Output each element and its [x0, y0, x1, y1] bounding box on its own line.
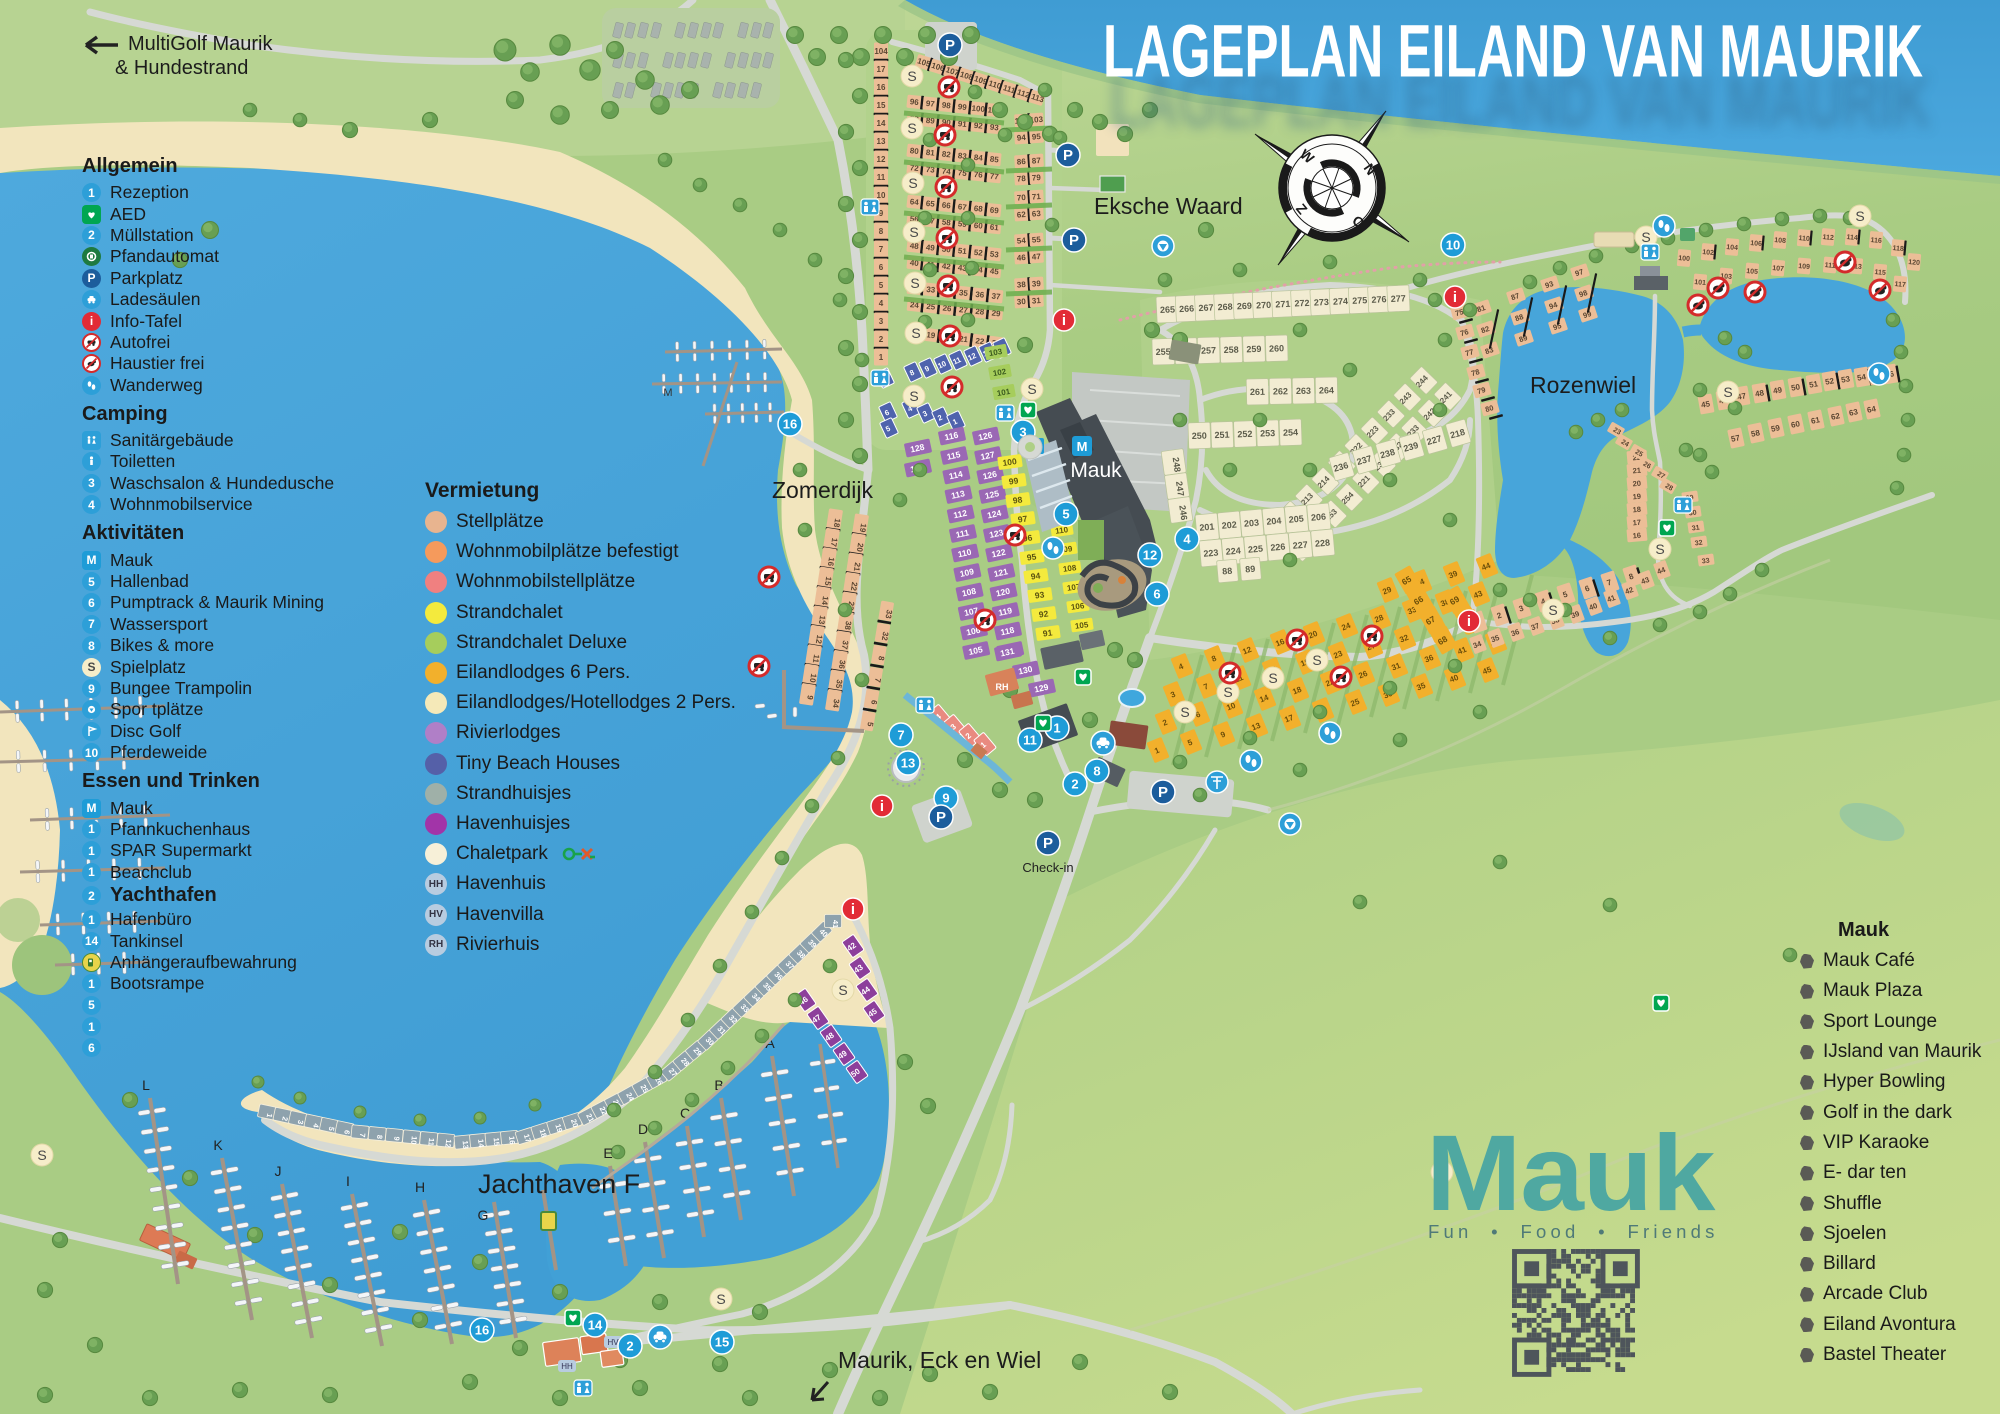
svg-text:106: 106 [1070, 601, 1085, 612]
svg-text:228: 228 [1315, 537, 1331, 548]
svg-text:98: 98 [1012, 494, 1023, 505]
svg-text:3: 3 [879, 317, 884, 326]
svg-text:MultiGolf Maurik: MultiGolf Maurik [128, 33, 273, 55]
svg-text:99: 99 [1008, 475, 1019, 486]
svg-text:32: 32 [1694, 539, 1703, 547]
svg-text:i: i [1062, 312, 1066, 329]
svg-text:S: S [1180, 704, 1189, 720]
svg-text:252: 252 [1237, 429, 1252, 440]
svg-text:i: i [851, 901, 855, 918]
svg-text:81: 81 [925, 148, 935, 158]
svg-text:52: 52 [973, 248, 983, 258]
svg-text:255: 255 [1156, 347, 1171, 357]
svg-text:33: 33 [926, 285, 936, 295]
svg-text:93: 93 [1034, 589, 1045, 600]
svg-text:257: 257 [1201, 345, 1216, 355]
svg-text:54: 54 [1017, 236, 1027, 246]
svg-text:S: S [1312, 652, 1321, 668]
svg-text:102: 102 [1702, 249, 1714, 257]
svg-text:100: 100 [1002, 456, 1018, 468]
svg-text:265: 265 [1160, 304, 1175, 315]
svg-text:12: 12 [1143, 548, 1157, 563]
svg-text:S: S [1548, 602, 1557, 618]
svg-text:84: 84 [973, 153, 983, 163]
svg-text:274: 274 [1333, 296, 1348, 307]
svg-text:RH: RH [996, 682, 1009, 692]
svg-text:271: 271 [1275, 299, 1290, 310]
svg-text:S: S [1723, 384, 1732, 400]
svg-text:13: 13 [461, 1140, 471, 1149]
svg-text:263: 263 [1296, 386, 1311, 396]
svg-text:55: 55 [1032, 235, 1042, 245]
svg-text:J: J [275, 1163, 282, 1179]
svg-text:277: 277 [1391, 293, 1406, 304]
svg-text:S: S [1641, 229, 1650, 245]
svg-text:118: 118 [1892, 245, 1904, 253]
svg-text:70: 70 [1017, 193, 1027, 203]
svg-text:11: 11 [426, 1138, 436, 1147]
svg-text:250: 250 [1192, 431, 1207, 442]
svg-text:14: 14 [588, 1318, 603, 1333]
svg-text:46: 46 [1017, 253, 1027, 263]
svg-text:S: S [909, 388, 918, 404]
svg-text:266: 266 [1179, 303, 1194, 314]
svg-text:18: 18 [1632, 505, 1641, 515]
svg-text:S: S [907, 120, 916, 136]
svg-text:S: S [1655, 541, 1664, 557]
svg-text:64: 64 [909, 197, 919, 207]
svg-text:80: 80 [909, 146, 919, 156]
svg-text:I: I [346, 1173, 350, 1189]
svg-text:99: 99 [957, 102, 967, 112]
svg-text:247: 247 [1174, 481, 1186, 497]
svg-text:224: 224 [1225, 545, 1241, 556]
svg-text:S: S [716, 1291, 725, 1307]
svg-text:8: 8 [1093, 764, 1100, 779]
svg-text:65: 65 [925, 199, 935, 209]
svg-text:260: 260 [1269, 343, 1284, 353]
svg-text:E: E [603, 1145, 612, 1161]
svg-text:P: P [936, 809, 946, 826]
svg-text:7: 7 [879, 245, 884, 254]
svg-text:9: 9 [942, 791, 949, 806]
svg-text:225: 225 [1248, 543, 1264, 554]
svg-text:10: 10 [409, 1136, 419, 1145]
svg-text:i: i [1467, 613, 1471, 630]
svg-text:16: 16 [783, 417, 797, 432]
svg-text:105: 105 [1074, 620, 1089, 631]
svg-text:14: 14 [877, 119, 886, 128]
svg-text:1: 1 [1053, 721, 1060, 736]
svg-text:1: 1 [879, 353, 884, 362]
svg-text:107: 107 [1772, 265, 1784, 273]
svg-text:6: 6 [879, 263, 884, 272]
svg-text:264: 264 [1319, 385, 1334, 395]
svg-text:71: 71 [1032, 192, 1042, 202]
svg-text:110: 110 [1798, 235, 1810, 243]
svg-text:i: i [1453, 289, 1457, 306]
svg-text:& Hundestrand: & Hundestrand [115, 57, 248, 79]
svg-text:6: 6 [1153, 587, 1160, 602]
svg-text:97: 97 [925, 99, 935, 109]
svg-text:261: 261 [1250, 387, 1265, 397]
svg-text:12: 12 [877, 155, 886, 164]
svg-text:267: 267 [1198, 302, 1213, 313]
svg-text:S: S [907, 68, 916, 84]
svg-text:259: 259 [1246, 344, 1261, 354]
svg-text:2: 2 [879, 335, 884, 344]
svg-text:7: 7 [358, 1133, 367, 1138]
svg-text:97: 97 [1017, 513, 1028, 524]
svg-text:94: 94 [1017, 133, 1027, 143]
svg-text:10: 10 [877, 191, 886, 200]
svg-text:114: 114 [1846, 234, 1858, 242]
svg-text:101: 101 [1694, 279, 1706, 287]
svg-text:120: 120 [1908, 259, 1920, 267]
svg-text:P: P [945, 37, 955, 54]
svg-text:21: 21 [1632, 466, 1641, 476]
svg-text:63: 63 [1032, 209, 1042, 219]
svg-text:16: 16 [507, 1136, 517, 1145]
svg-text:S: S [1268, 670, 1277, 686]
svg-text:S: S [1027, 381, 1036, 397]
svg-text:82: 82 [941, 150, 951, 160]
svg-text:G: G [478, 1207, 489, 1223]
svg-text:62: 62 [1017, 210, 1027, 220]
svg-text:89: 89 [1245, 564, 1256, 575]
svg-text:85: 85 [989, 155, 999, 165]
svg-text:95: 95 [1032, 132, 1042, 142]
svg-text:M: M [663, 387, 672, 399]
svg-text:5: 5 [1062, 507, 1069, 522]
svg-text:H: H [415, 1179, 425, 1195]
svg-text:5: 5 [879, 281, 884, 290]
svg-text:87: 87 [1032, 156, 1042, 166]
svg-text:P: P [1063, 147, 1073, 164]
svg-text:116: 116 [1870, 237, 1882, 245]
svg-text:205: 205 [1288, 513, 1304, 524]
svg-text:9: 9 [392, 1136, 401, 1141]
svg-text:Jachthaven F: Jachthaven F [478, 1169, 640, 1199]
svg-text:78: 78 [1017, 174, 1027, 184]
svg-text:248: 248 [1171, 457, 1183, 473]
svg-text:253: 253 [1260, 428, 1275, 439]
svg-text:115: 115 [1874, 269, 1886, 277]
svg-text:51: 51 [957, 246, 967, 256]
svg-text:Rozenwiel: Rozenwiel [1530, 372, 1636, 398]
svg-text:19: 19 [1632, 492, 1641, 502]
svg-text:109: 109 [1798, 263, 1810, 271]
svg-text:Mauk: Mauk [1070, 459, 1122, 482]
svg-text:112: 112 [1822, 234, 1834, 242]
svg-text:Eksche Waard: Eksche Waard [1094, 193, 1243, 219]
svg-text:7: 7 [897, 728, 904, 743]
svg-text:66: 66 [941, 201, 951, 211]
svg-text:258: 258 [1224, 345, 1239, 355]
svg-text:104: 104 [874, 47, 888, 56]
svg-text:16: 16 [1632, 531, 1641, 541]
svg-text:S: S [911, 325, 920, 341]
svg-text:33: 33 [1701, 557, 1710, 565]
svg-text:108: 108 [1774, 237, 1786, 245]
svg-text:S: S [908, 175, 917, 191]
svg-text:4: 4 [1183, 532, 1191, 547]
svg-text:204: 204 [1266, 515, 1282, 526]
svg-text:Zomerdijk: Zomerdijk [772, 477, 873, 503]
svg-text:15: 15 [492, 1137, 502, 1146]
svg-text:S: S [909, 224, 918, 240]
svg-text:16: 16 [475, 1323, 489, 1338]
svg-text:53: 53 [989, 250, 999, 260]
svg-text:105: 105 [1746, 268, 1758, 276]
svg-text:15: 15 [877, 101, 886, 110]
svg-text:8: 8 [375, 1134, 384, 1139]
svg-text:D: D [638, 1121, 648, 1137]
svg-text:S: S [838, 982, 847, 998]
svg-text:100: 100 [971, 104, 986, 114]
svg-text:35: 35 [959, 288, 969, 298]
svg-text:201: 201 [1199, 521, 1215, 532]
svg-text:31: 31 [1691, 524, 1700, 532]
svg-text:30: 30 [1017, 297, 1027, 307]
svg-text:47: 47 [1032, 252, 1042, 262]
svg-text:41: 41 [831, 920, 840, 928]
svg-text:88: 88 [1222, 566, 1233, 577]
svg-text:P: P [1158, 784, 1168, 801]
svg-text:95: 95 [1026, 551, 1037, 562]
svg-text:270: 270 [1256, 300, 1271, 311]
svg-text:13: 13 [901, 756, 915, 771]
svg-text:276: 276 [1371, 294, 1386, 305]
svg-text:16: 16 [877, 83, 886, 92]
svg-text:38: 38 [1017, 280, 1027, 290]
svg-text:S: S [910, 275, 919, 291]
svg-text:39: 39 [1032, 279, 1042, 289]
svg-text:4: 4 [879, 299, 884, 308]
svg-text:202: 202 [1221, 519, 1237, 530]
svg-text:275: 275 [1352, 295, 1367, 306]
svg-text:i: i [880, 798, 884, 815]
svg-text:262: 262 [1273, 386, 1288, 396]
svg-text:108: 108 [1062, 563, 1077, 574]
svg-text:2: 2 [1071, 777, 1078, 792]
svg-text:11: 11 [877, 173, 886, 182]
svg-text:86: 86 [1017, 157, 1027, 167]
svg-text:8: 8 [879, 227, 884, 236]
svg-text:10: 10 [1446, 238, 1460, 253]
svg-text:P: P [1043, 835, 1053, 852]
svg-text:67: 67 [957, 202, 967, 212]
svg-text:HH: HH [561, 1362, 573, 1371]
svg-text:P: P [1069, 232, 1079, 249]
svg-text:203: 203 [1244, 517, 1260, 528]
svg-text:227: 227 [1292, 539, 1308, 550]
svg-text:S: S [37, 1147, 46, 1163]
svg-text:37: 37 [991, 292, 1001, 302]
svg-text:223: 223 [1203, 547, 1219, 558]
svg-text:31: 31 [1032, 296, 1042, 306]
svg-text:268: 268 [1217, 302, 1232, 313]
svg-text:36: 36 [975, 290, 985, 300]
svg-text:Check-in: Check-in [1022, 860, 1073, 875]
svg-text:L: L [142, 1077, 150, 1093]
svg-text:117: 117 [1894, 281, 1906, 289]
svg-text:69: 69 [989, 206, 999, 216]
svg-text:100: 100 [1678, 255, 1690, 263]
svg-text:79: 79 [1032, 173, 1042, 183]
svg-text:246: 246 [1177, 505, 1189, 521]
svg-text:11: 11 [1023, 733, 1037, 748]
svg-text:206: 206 [1311, 511, 1327, 522]
svg-text:251: 251 [1214, 430, 1229, 441]
svg-text:104: 104 [1726, 244, 1738, 252]
svg-text:272: 272 [1294, 298, 1309, 309]
svg-text:Maurik, Eck en Wiel: Maurik, Eck en Wiel [838, 1347, 1041, 1373]
svg-text:254: 254 [1283, 427, 1298, 438]
svg-text:269: 269 [1237, 301, 1252, 312]
svg-text:M: M [1077, 439, 1088, 454]
svg-text:13: 13 [877, 137, 886, 146]
svg-text:226: 226 [1270, 541, 1286, 552]
svg-text:98: 98 [941, 101, 951, 111]
svg-text:106: 106 [1750, 240, 1762, 248]
svg-text:S: S [1223, 684, 1232, 700]
svg-text:273: 273 [1314, 297, 1329, 308]
svg-text:92: 92 [1038, 608, 1049, 619]
svg-text:20: 20 [1632, 479, 1641, 489]
svg-text:S: S [1855, 208, 1864, 224]
svg-text:94: 94 [1030, 570, 1041, 581]
svg-text:17: 17 [1632, 518, 1641, 528]
svg-text:96: 96 [909, 97, 919, 107]
svg-text:K: K [213, 1137, 223, 1153]
svg-text:12: 12 [443, 1139, 453, 1148]
svg-text:15: 15 [715, 1335, 729, 1350]
svg-text:49: 49 [925, 243, 935, 253]
svg-text:68: 68 [973, 204, 983, 214]
svg-text:17: 17 [877, 65, 886, 74]
svg-text:91: 91 [1042, 627, 1053, 638]
svg-text:2: 2 [626, 1339, 633, 1354]
